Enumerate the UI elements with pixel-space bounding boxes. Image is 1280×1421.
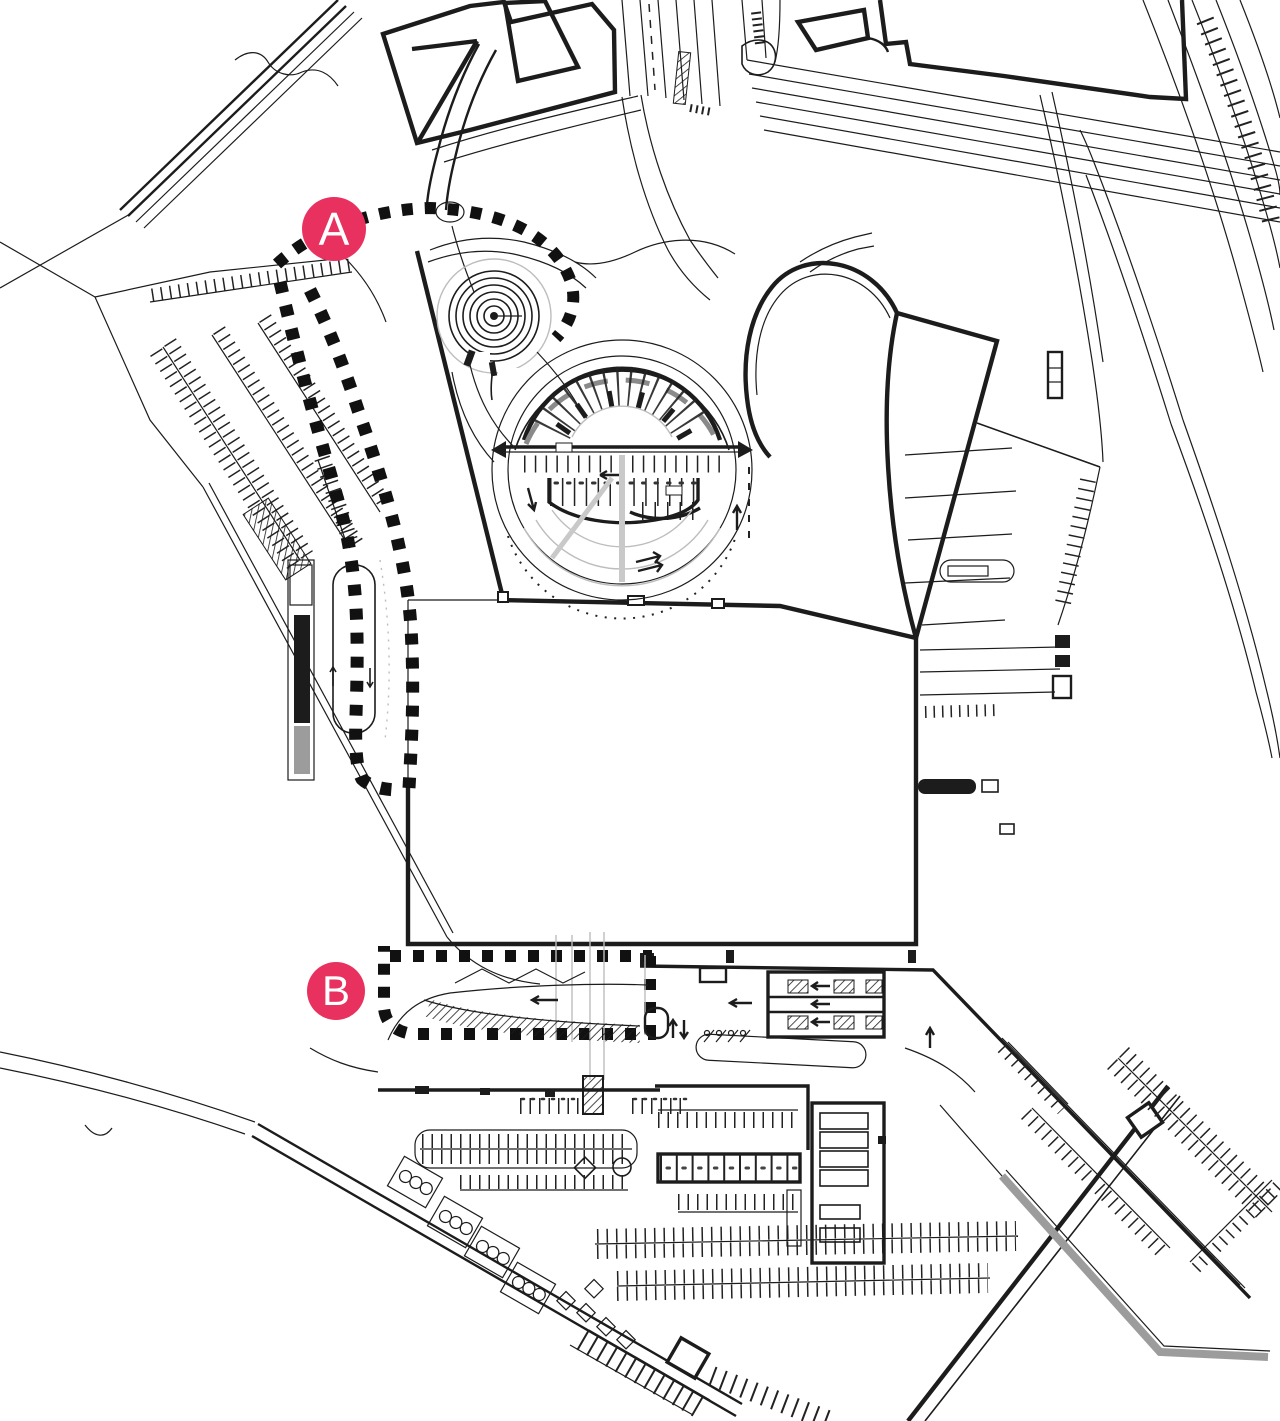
site-plan-page: A B (0, 0, 1280, 1421)
marker-a-label: A (319, 206, 350, 252)
marker-a: A (302, 197, 366, 261)
southwest-shops (0, 1052, 830, 1421)
site-plan-drawing (0, 0, 1280, 1421)
west-parking-lot (0, 242, 540, 984)
northeast-building (798, 0, 1186, 99)
marker-b-label: B (322, 970, 350, 1012)
east-service-yard (905, 423, 1100, 834)
southeast-parking (908, 1005, 1278, 1421)
rail-corridor (1040, 0, 1280, 758)
marker-b: B (307, 962, 365, 1020)
route-a-dotted (277, 208, 573, 790)
west-transit-platforms (288, 458, 389, 780)
drop-off-court (491, 340, 753, 619)
